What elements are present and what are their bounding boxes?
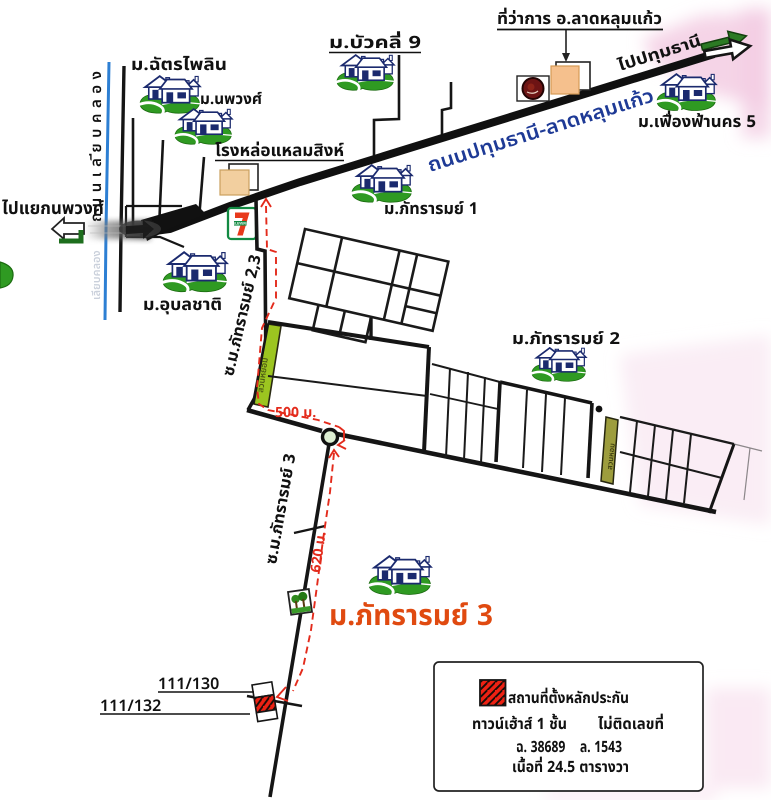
svg-text:ELEVEN: ELEVEN [233,222,246,226]
